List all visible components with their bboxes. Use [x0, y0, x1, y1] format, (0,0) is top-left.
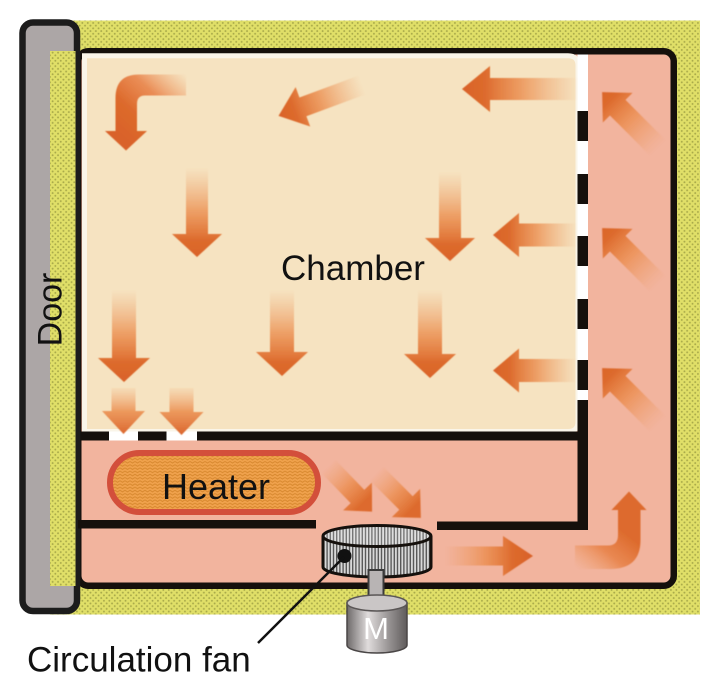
svg-text:Chamber: Chamber [281, 249, 425, 288]
svg-text:Door: Door [31, 273, 69, 347]
svg-text:Circulation fan: Circulation fan [27, 641, 251, 680]
svg-text:M: M [363, 611, 389, 646]
svg-text:Heater: Heater [162, 466, 270, 507]
